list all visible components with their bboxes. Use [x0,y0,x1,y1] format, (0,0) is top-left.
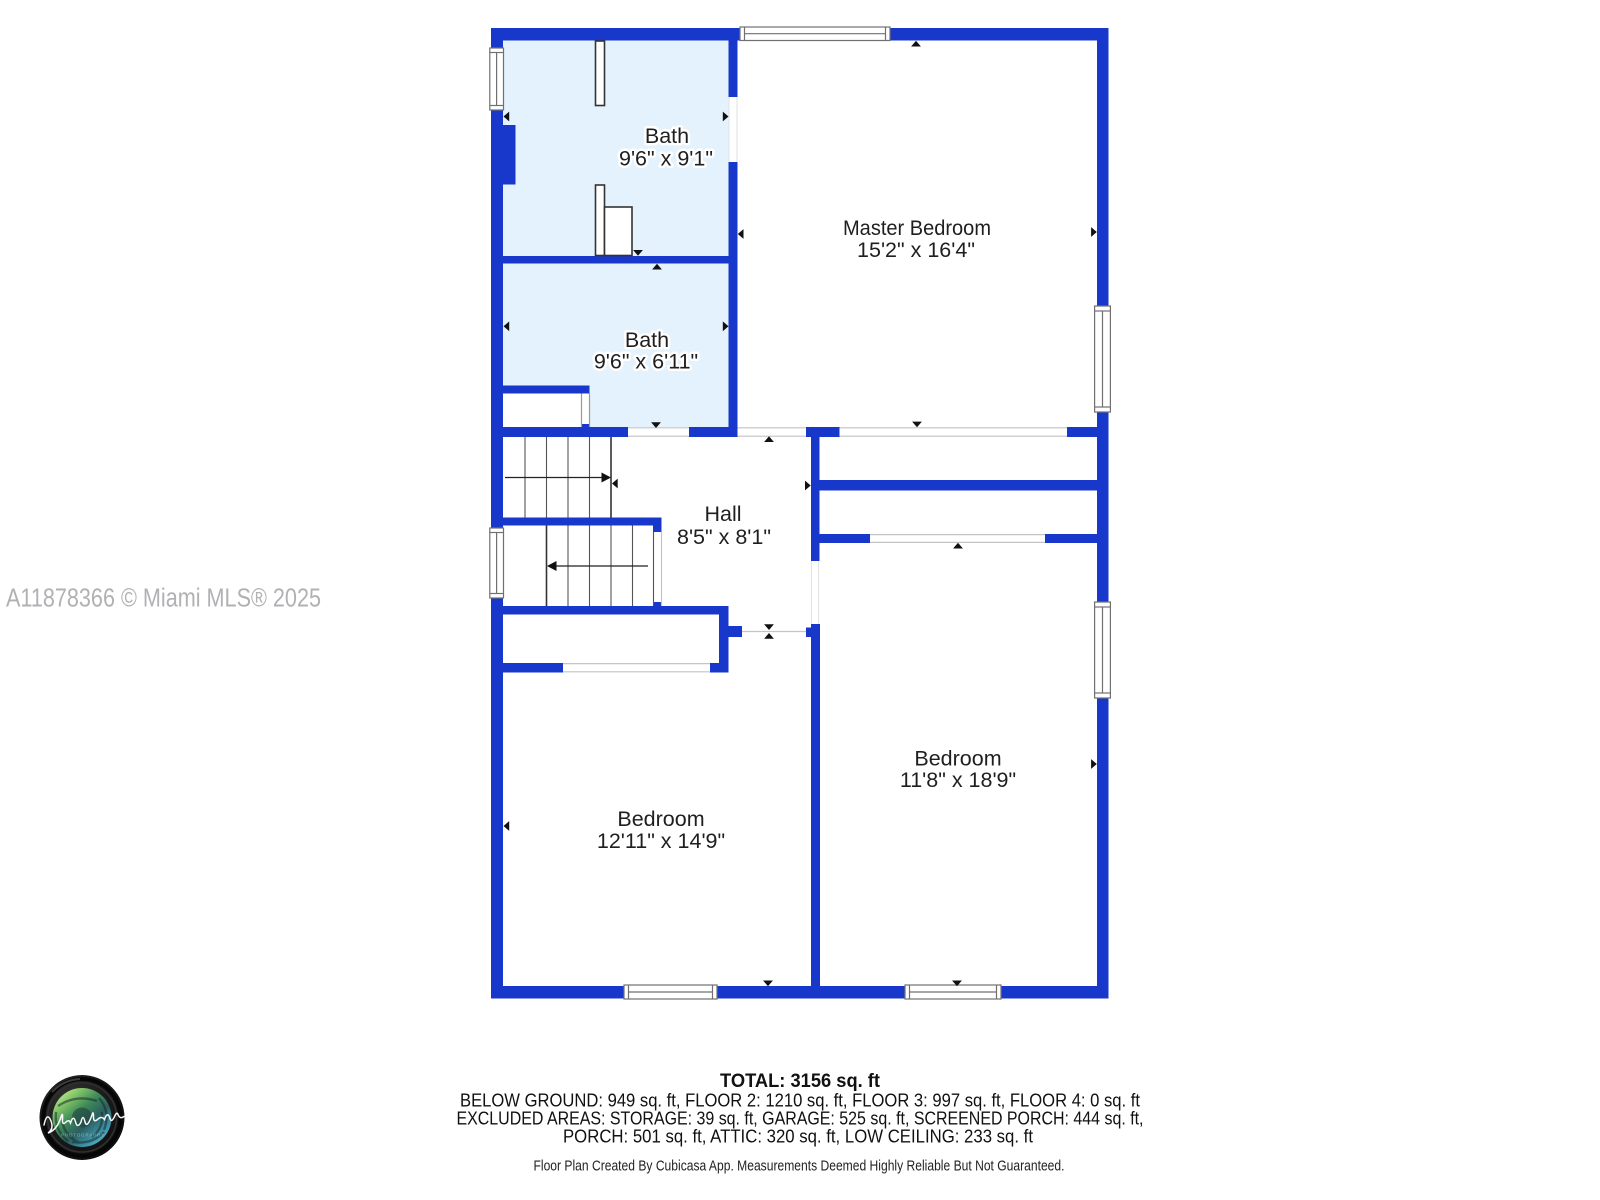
svg-text:Bedroom: Bedroom [617,807,704,831]
svg-text:8'5" x 8'1": 8'5" x 8'1" [677,525,771,549]
svg-text:PORCH: 501 sq. ft, ATTIC: 320: PORCH: 501 sq. ft, ATTIC: 320 sq. ft, LO… [563,1127,1033,1147]
svg-text:Hall: Hall [704,502,741,526]
svg-text:EXCLUDED AREAS: STORAGE: 39 sq: EXCLUDED AREAS: STORAGE: 39 sq. ft, GARA… [457,1109,1144,1129]
svg-text:TOTAL: 3156 sq. ft: TOTAL: 3156 sq. ft [720,1071,881,1092]
svg-text:Bath: Bath [645,124,689,148]
svg-text:BELOW GROUND: 949 sq. ft, FLOO: BELOW GROUND: 949 sq. ft, FLOOR 2: 1210 … [460,1091,1140,1111]
svg-text:Floor Plan Created By Cubicasa: Floor Plan Created By Cubicasa App. Meas… [534,1159,1065,1175]
svg-text:Bath: Bath [625,328,669,352]
svg-text:12'11" x 14'9": 12'11" x 14'9" [597,829,725,853]
svg-text:Master Bedroom: Master Bedroom [843,216,991,240]
svg-text:Bedroom: Bedroom [914,747,1001,771]
svg-text:9'6" x 9'1": 9'6" x 9'1" [619,147,713,171]
svg-text:11'8" x 18'9": 11'8" x 18'9" [900,768,1016,792]
svg-text:PHOTOGRAPHY: PHOTOGRAPHY [61,1133,105,1138]
svg-text:9'6" x 6'11": 9'6" x 6'11" [594,350,698,374]
svg-text:A11878366 © Miami MLS® 2025: A11878366 © Miami MLS® 2025 [6,585,321,613]
svg-text:15'2" x 16'4": 15'2" x 16'4" [857,238,975,262]
